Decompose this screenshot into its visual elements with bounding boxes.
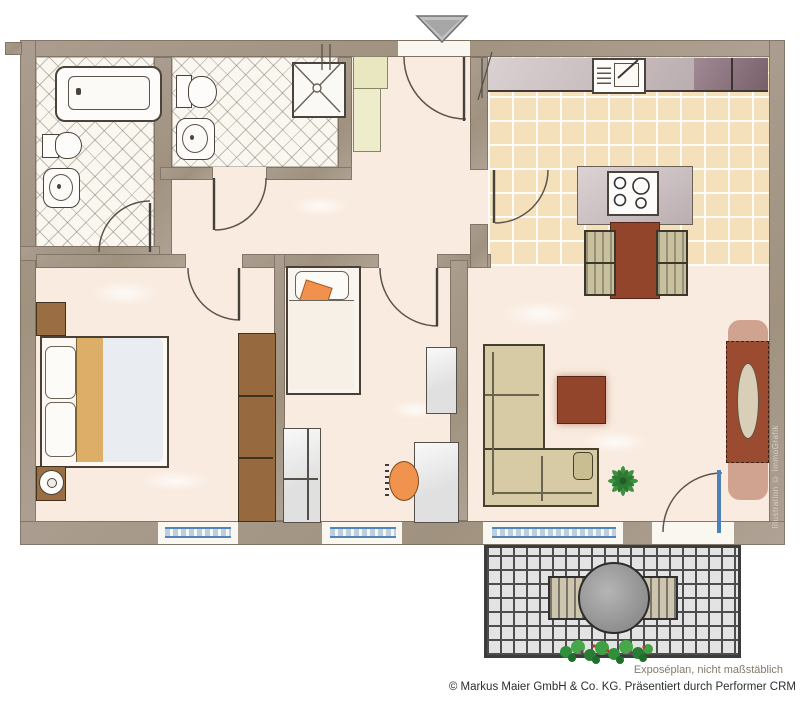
dining-chair	[656, 230, 688, 264]
floor-texture	[140, 470, 210, 492]
sink-basin-kitchen	[614, 63, 639, 87]
sofa-backrest-line	[492, 492, 592, 494]
floor-texture	[90, 280, 160, 306]
nightstand-upper	[36, 302, 66, 336]
sofa-cushion-line	[541, 456, 543, 501]
sofa-armrest-cushion	[573, 452, 593, 480]
balcony-table	[578, 562, 650, 634]
wall-showerbath-bottom-left	[160, 167, 213, 180]
child-bed-duvet	[289, 300, 354, 389]
sofa-cushion-line	[485, 394, 539, 396]
child-dresser	[283, 428, 321, 523]
dresser-divider	[284, 478, 318, 480]
sideboard-decor	[737, 363, 759, 439]
outer-wall-left	[20, 40, 36, 545]
sink-drainboard	[597, 64, 611, 84]
bidet-basin	[49, 174, 73, 201]
hall-closet-lower	[353, 88, 381, 152]
sink-drain-bath2	[190, 135, 194, 140]
toilet-bowl-bath1	[55, 132, 82, 159]
balcony-door-opening	[652, 522, 734, 544]
child-cabinet	[426, 347, 457, 414]
wall-hall-bottom-a	[36, 254, 186, 268]
bed-duvet	[103, 338, 163, 462]
wardrobe-divider	[239, 395, 273, 397]
kitchen-counter	[488, 58, 694, 92]
coffee-table	[557, 376, 606, 424]
window-childroom	[330, 527, 396, 538]
lamp-center	[47, 478, 57, 488]
desk-chair	[389, 461, 419, 501]
entrance-marker	[417, 16, 467, 42]
plan-disclaimer: Exposéplan, nicht maßstäblich	[634, 664, 783, 676]
wardrobe-divider	[239, 457, 273, 459]
hall-closet-upper	[353, 56, 388, 89]
shower	[292, 62, 346, 118]
bed-blanket	[76, 338, 105, 462]
illustrator-watermark: Illustration © ImmoGrafik	[771, 425, 780, 529]
dining-chair	[656, 262, 688, 296]
bed-pillow	[45, 346, 76, 399]
window-living	[492, 527, 616, 538]
floor-plan: Illustration © ImmoGrafik Exposéplan, ni…	[0, 0, 800, 702]
bidet-drain	[57, 184, 61, 189]
wardrobe	[238, 333, 276, 522]
window-bedroom	[165, 527, 231, 538]
desk	[414, 442, 459, 523]
bed-pillow	[45, 402, 76, 457]
floor-texture	[290, 195, 350, 217]
desk-chair-back	[385, 464, 389, 496]
wall-showerbath-bottom-right	[266, 167, 352, 180]
copyright-line: © Markus Maier GmbH & Co. KG. Präsentier…	[449, 681, 796, 693]
sink-basin-bath2	[182, 124, 208, 153]
dining-chair	[584, 262, 616, 296]
dining-chair	[584, 230, 616, 264]
bathtub-drain	[76, 88, 81, 95]
cooktop	[607, 171, 659, 216]
floor-texture	[500, 300, 580, 328]
cabinet-divider	[731, 58, 733, 92]
sofa-backrest-line	[492, 352, 494, 495]
toilet-bowl-bath2	[188, 76, 217, 108]
wall-stub-top-left	[5, 42, 22, 55]
dresser-divider	[307, 429, 309, 520]
entrance-door-opening	[398, 41, 470, 56]
dining-table	[610, 222, 660, 299]
wall-kitchen-left-bottom	[470, 224, 488, 268]
wall-kitchen-left-top	[470, 57, 488, 170]
